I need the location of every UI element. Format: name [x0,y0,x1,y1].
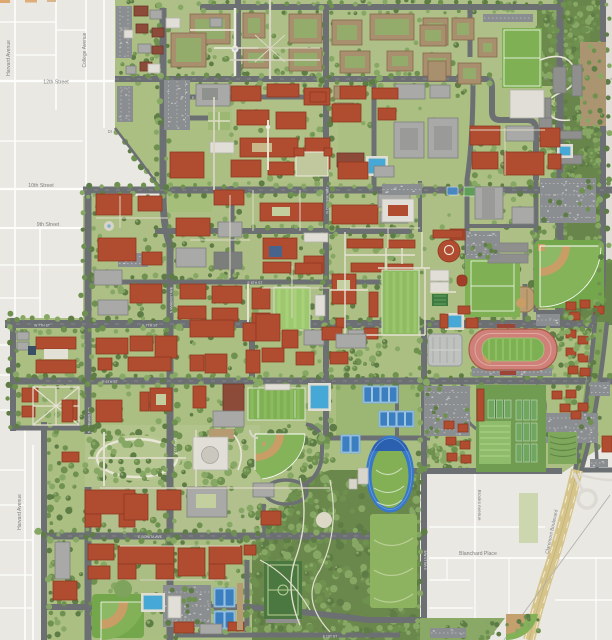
svg-text:Harvard Avenue: Harvard Avenue [17,494,23,530]
svg-text:9th Street: 9th Street [37,222,60,228]
svg-text:College Avenue: College Avenue [82,32,88,67]
svg-text:Brooks Avenue: Brooks Avenue [477,490,482,521]
svg-text:10th Street: 10th Street [28,183,54,189]
svg-text:Blanchard Place: Blanchard Place [459,551,497,557]
svg-text:12th Street: 12th Street [43,80,69,86]
svg-text:S MILLS AVE: S MILLS AVE [424,549,428,570]
svg-text:N COLLEGE WAY: N COLLEGE WAY [326,186,330,214]
svg-text:E 1ST ST: E 1ST ST [323,634,337,638]
svg-text:E 6TH ST: E 6TH ST [102,380,119,384]
svg-text:W 7TH ST: W 7TH ST [34,324,50,328]
svg-text:E 8TH ST: E 8TH ST [248,281,263,285]
svg-text:Harvard Avenue: Harvard Avenue [6,40,12,76]
svg-text:Dr: Dr [108,129,113,134]
